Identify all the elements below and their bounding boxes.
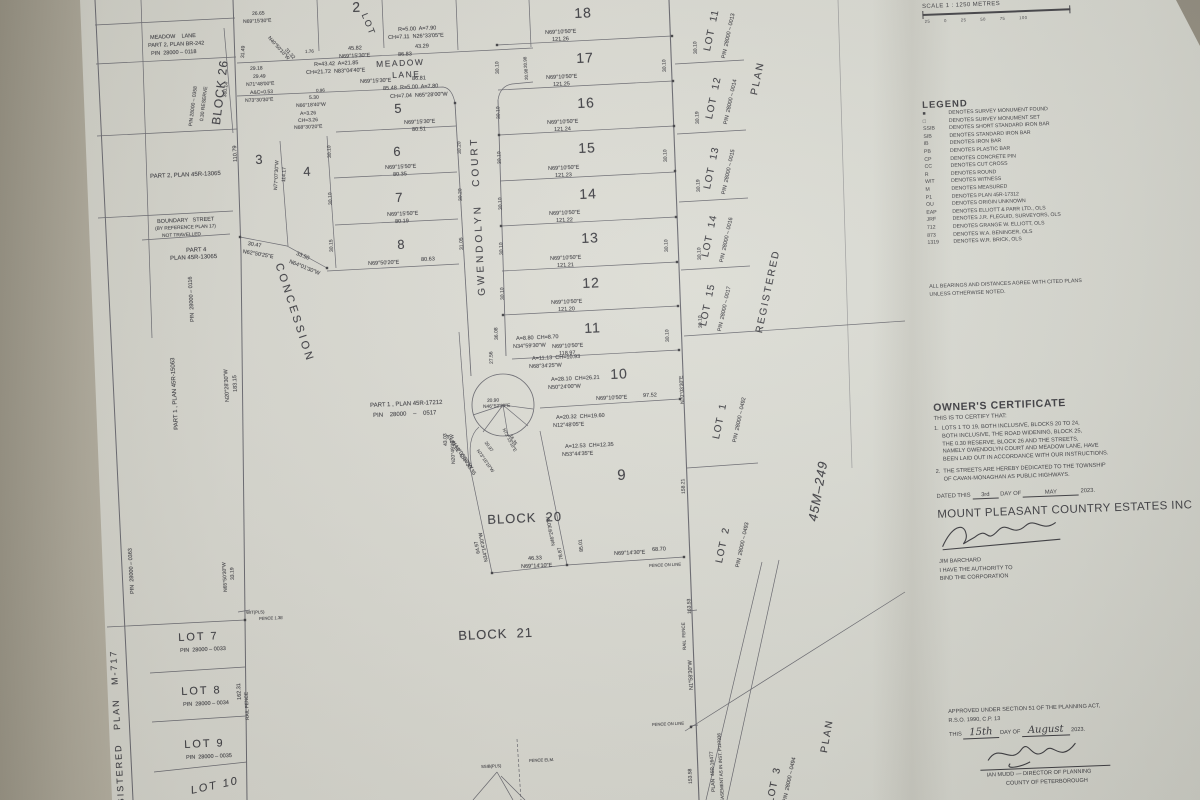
dimension-label: PART 2, PLAN BR-242 (148, 42, 204, 50)
lot-10-number: 10 (610, 366, 628, 381)
dimension-label: PIN 28000 – 0033 (180, 647, 226, 655)
dimension-label: N68°30'20"E (294, 125, 323, 131)
dimension-label: PART 1 , PLAN 45R-15063 (170, 357, 180, 430)
dimension-label: 85.01 (579, 539, 586, 552)
dimension-label: N20°28'30"W (224, 369, 231, 402)
dimension-label: N12°48'05"E (553, 423, 584, 430)
dimension-label: 43.03 (443, 433, 449, 446)
dimension-label: PIN 28000 – 0016 (720, 217, 735, 263)
approval-block: APPROVED UNDER SECTION 51 OF THE PLANNIN… (948, 700, 1151, 790)
lot-14-number: 14 (579, 186, 597, 201)
dimension-label: PIN 28000 – 0494 (783, 757, 798, 800)
lot-3-number: 3 (255, 153, 263, 167)
legend-description: DENOTES W.R. BRICK, OLS (953, 236, 1022, 246)
dimension-label: 20.98 (524, 69, 529, 80)
meadow-lane-street-label: MEADOW (376, 58, 425, 69)
dated-year: 2023. (1080, 488, 1095, 495)
dimension-label: PART 1 , PLAN 45R-17212 (370, 400, 443, 409)
dimension-label: N64°01'30"W (288, 260, 320, 278)
dimension-label: N68°34'25"W (529, 364, 562, 371)
dimension-label: PLAN 45R-16477 (710, 751, 717, 792)
dimension-label: PIN 28000 – 0492 (733, 397, 748, 443)
dimension-label: CH=7.11 N26°33'05"E (388, 34, 444, 42)
dimension-label: A=28.10 CH=26.21 (551, 376, 600, 384)
dimension-label: SSIB(PLS) (481, 764, 501, 769)
dimension-label: 5.30 (309, 96, 319, 102)
dimension-label: 30.15 (329, 239, 335, 252)
dimension-label: 30.10 (500, 287, 506, 300)
lot-18-number: 18 (574, 5, 592, 20)
dimension-label: NOT TRAVELLED (162, 232, 201, 239)
dimension-label: 30.10 (496, 106, 502, 119)
dimension-label: N73°15'10"W (475, 449, 494, 474)
dimension-label: N20°49'10"W (450, 434, 457, 464)
dimension-label: 29.49 (253, 74, 266, 80)
dimension-label: 31.05 (459, 237, 465, 250)
dimension-label: N66°18'40"W (296, 103, 326, 110)
lot-12-plan-label: LOT 12 (705, 76, 724, 120)
owners-certificate: OWNER'S CERTIFICATE THIS IS TO CERTIFY T… (933, 394, 1150, 583)
dimension-label: PLAN (750, 61, 767, 97)
scale-tick-label: 25 (961, 18, 967, 23)
owner-signature (938, 516, 1069, 553)
dimension-label: PIN 28000 – 0017 (718, 286, 733, 332)
lot-11-plan-label: LOT 11 (703, 9, 722, 52)
dimension-label: 20.97 (483, 441, 493, 453)
lot-15-number: 15 (578, 140, 596, 155)
dimension-label: RAIL FENCE (245, 692, 251, 720)
dimension-label: 30.10 (328, 192, 334, 205)
lot-1-plan-label: LOT 1 (712, 402, 730, 440)
dimension-label: EASEMENT AS IN INST. P127936 (717, 733, 725, 800)
dimension-label: 121.25 (553, 82, 570, 88)
registered-plan-m717-label: REGISTERED PLAN M-717 (109, 649, 127, 800)
dimension-label: N70°03'30"E (680, 375, 687, 404)
survey-plan-photo: MEADOW LANEPART 2, PLAN BR-242PIN 28000 … (0, 0, 1200, 800)
dimension-label: 162.31 (237, 683, 244, 700)
dimension-label: A=12.53 CH=12.35 (565, 443, 614, 451)
dimension-label: PART 4 (186, 247, 207, 254)
lot-4-number: 4 (303, 165, 311, 179)
dimension-label: PIN 28000 – 0493 (736, 522, 751, 568)
dimension-label: 153.58 (688, 768, 694, 784)
dimension-label: 86.81 (412, 76, 426, 82)
lot-17-number: 17 (576, 50, 594, 65)
dimension-label: REGISTERED (755, 249, 783, 334)
dimension-label: CH=21.72 N83°04'40"E (306, 68, 365, 76)
lot-7-number: 7 (395, 191, 403, 205)
dimension-label: N50°24'00"W (548, 385, 581, 392)
dimension-label: N69°50'20"E (368, 261, 399, 268)
dimension-label: 114.17 (282, 167, 288, 182)
approver-signature (979, 736, 1090, 770)
dimension-label: LOT (359, 12, 377, 37)
dimension-label: R=5.00 A=7.80 (400, 84, 438, 91)
lot-9-label: LOT 9 (184, 738, 225, 751)
dimension-label: 30.10 (497, 151, 503, 164)
dimension-label: 158.21 (681, 478, 687, 494)
dimension-label: PIN 28000 – 0015 (722, 149, 737, 195)
approval-month: August (1022, 724, 1070, 738)
dimension-label: (BY REFERENCE PLAN 17) (155, 224, 216, 232)
dimension-label: 30.10 (327, 145, 333, 158)
dimension-label: 121.21 (557, 263, 574, 269)
legend-symbol: 1319 (927, 239, 953, 248)
dimension-label: 30.10 (665, 329, 671, 342)
dimension-label: 26.65 (252, 11, 265, 17)
dimension-label: PART 2, PLAN 45R-13065 (150, 171, 221, 180)
certificate-clause-2: 2. THE STREETS ARE HEREBY DEDICATED TO T… (936, 461, 1146, 485)
dimension-label: A&C=0.53 (250, 90, 273, 96)
dimension-label: 110.79 (233, 145, 240, 162)
dimension-label: N65°50'30"W (222, 562, 229, 592)
dimension-label: 30.10 (499, 242, 505, 255)
dimension-label: 68.70 (652, 547, 666, 553)
lot-15-plan-label: LOT 15 (699, 283, 718, 327)
legend-items: ■DENOTES SURVEY MONUMENT FOUND□DENOTES S… (922, 102, 1157, 247)
dimension-label: 80.63 (421, 257, 435, 263)
lot-6-number: 6 (393, 145, 401, 159)
dated-of: DAY OF (1000, 490, 1021, 497)
dimension-label: N53°44'35"E (562, 452, 593, 459)
dimension-label: FENCE ELM. (529, 758, 554, 763)
dimension-label: N46°52'20"E (483, 404, 510, 410)
dimension-label: N71°48'00"E (246, 82, 275, 88)
dimension-label: 85.48 (383, 86, 397, 92)
dimension-label: A=11.13 CH=10.93 (532, 355, 580, 363)
scale-tick-label: 75 (1000, 16, 1006, 21)
lot-14-plan-label: LOT 14 (701, 214, 720, 258)
approval-day: 15th (963, 726, 999, 739)
approval-year: 2023. (1071, 727, 1085, 734)
dimension-label: N73°30'30"E (245, 98, 274, 104)
dimension-label: 121.20 (558, 307, 575, 313)
lot-8-number: 8 (397, 238, 405, 252)
dimension-label: 33.19 (230, 567, 236, 580)
concession-label: CONCESSION (272, 262, 315, 364)
dimension-label: 46.33 (528, 556, 542, 562)
dimension-label: N69°15'30"E (243, 19, 272, 25)
dimension-label: PIN 28000 – 0013 (722, 13, 737, 59)
scale-tick-label: 100 (1019, 15, 1027, 20)
dimension-label: 30.10 (662, 59, 668, 72)
dimension-label: N69°15'30"E (360, 79, 391, 86)
certificate-dated-line: DATED THIS 3rd DAY OF MAY 2023. (937, 486, 1147, 501)
plan-45m-249-label: 45M–249 (806, 460, 830, 523)
dimension-label: 29.18 (250, 66, 263, 72)
dimension-label: 78.87 (558, 547, 566, 560)
dimension-label: PIN 28000 – 0116 (189, 276, 197, 322)
dimension-label: CH=7.04 N65°28'00"W (390, 92, 448, 100)
dimension-label: 163.53 (687, 598, 693, 614)
dimension-label: 30.10 (495, 61, 501, 74)
dimension-label: N1°58'30"W (688, 660, 695, 690)
dimension-label: PLAN 45R-13065 (170, 254, 217, 262)
dimension-label: 45.82 (348, 46, 362, 52)
lot-3-plan-label: LOT 3 (766, 766, 784, 800)
dimension-label: PIN 28000 – 0358 (189, 86, 199, 127)
dated-day: 3rd (972, 491, 999, 499)
lot-12-number: 12 (582, 275, 600, 290)
dimension-label: 30.19 (695, 111, 701, 124)
dimension-label: 30.10 (693, 41, 699, 54)
dimension-label: 20.98 (523, 57, 528, 68)
approval-this: THIS (949, 732, 962, 738)
dimension-label: 27.56 (489, 351, 495, 364)
dimension-label: 0.30 RESERVE (200, 86, 209, 121)
lot-13-number: 13 (581, 230, 599, 245)
dimension-label: 97.52 (643, 393, 657, 399)
scale-tick-label: 25 (925, 19, 931, 24)
dimension-label: 121.23 (555, 173, 572, 179)
dimension-label: 360.14 (223, 82, 230, 98)
dimension-label: PIN 28000 – 0035 (186, 754, 232, 762)
dimension-label: 121.22 (556, 218, 573, 224)
lot-2-plan-label: LOT 2 (715, 526, 733, 564)
lot-13-plan-label: LOT 13 (703, 146, 722, 190)
dimension-label: RAIL FENCE (682, 622, 688, 650)
dimension-label: N62°50'25"E (242, 250, 274, 261)
dimension-label: 30.47 (247, 242, 262, 250)
lot-10-label: LOT 10 (190, 776, 240, 797)
gwendolyn-court-street-label: GWENDOLYN COURT (470, 136, 489, 296)
dimension-label: 183.15 (233, 375, 240, 392)
lot-8-label: LOT 8 (181, 685, 222, 698)
scale-tick-label: 50 (980, 17, 986, 22)
dated-month: MAY (1023, 488, 1079, 497)
lot-16-number: 16 (577, 95, 595, 110)
dimension-label: N69°14'30"E (614, 551, 645, 558)
dimension-label: PIN 28000 – 0014 (724, 79, 739, 125)
certificate-clause-1: 1. LOTS 1 TO 19, BOTH INCLUSIVE, BLOCKS … (934, 418, 1145, 465)
dimension-label: 30.10 (498, 197, 504, 210)
dimension-label: PLAN (820, 718, 836, 753)
dimension-label: 121.26 (552, 37, 569, 43)
dimension-label: 80.19 (395, 219, 409, 225)
dimension-label: N69°10'50"E (596, 396, 627, 403)
dimension-label: 20.90 (487, 398, 499, 404)
block-21-label: BLOCK 21 (458, 626, 533, 643)
dimension-label: 36.08 (494, 327, 500, 340)
dimension-label: FENCE ON LINE (652, 722, 684, 728)
dimension-label: 80.51 (412, 127, 426, 133)
dimension-label: 30.10 (663, 149, 669, 162)
dimension-label: N34°59'30"W (513, 344, 546, 351)
dimension-label: WIT(PLS) (246, 610, 265, 615)
dated-prefix: DATED THIS (937, 492, 971, 499)
dimension-label: A=20.32 CH=19.60 (556, 414, 605, 422)
dimension-label: 121.24 (554, 127, 571, 133)
dimension-label: 31.49 (241, 46, 247, 59)
scale-tick-label: 0 (944, 18, 947, 23)
dimension-label: 30.20 (458, 188, 464, 201)
dimension-label: FENCE 1.3E (259, 616, 283, 621)
dimension-label: 30.20 (457, 141, 463, 154)
dimension-label: 43.29 (415, 44, 429, 50)
lot-9-number: 9 (617, 468, 626, 484)
approval-day-of: DAY OF (1000, 730, 1021, 737)
lot-5-number: 5 (394, 102, 402, 116)
dimension-label: N69°14'10"E (521, 564, 552, 571)
lot-7-label: LOT 7 (178, 631, 219, 644)
lot-2-number: 2 (352, 0, 360, 15)
dimension-label: A=8.80 CH=8.70 (516, 335, 559, 343)
dimension-label: 30.10 (664, 239, 670, 252)
dimension-label: PIN 28000 – 0517 (373, 410, 437, 419)
dimension-label: 1.76 (305, 50, 314, 55)
dimension-label: PIN 28000 – 0118 (151, 50, 197, 58)
dimension-label: 0.96 (316, 89, 325, 94)
dimension-label: FENCE ON LINE (649, 563, 681, 569)
dimension-label: PIN 28000 – 0363 (129, 548, 137, 594)
dimension-label: N77°07'30"W (274, 160, 281, 190)
dimension-label: 80.35 (393, 172, 407, 178)
legend-panel: LEGEND ■DENOTES SURVEY MONUMENT FOUND□DE… (922, 91, 1159, 299)
dimension-label: PIN 28000 – 0034 (183, 701, 229, 709)
lot-11-number: 11 (584, 320, 601, 335)
